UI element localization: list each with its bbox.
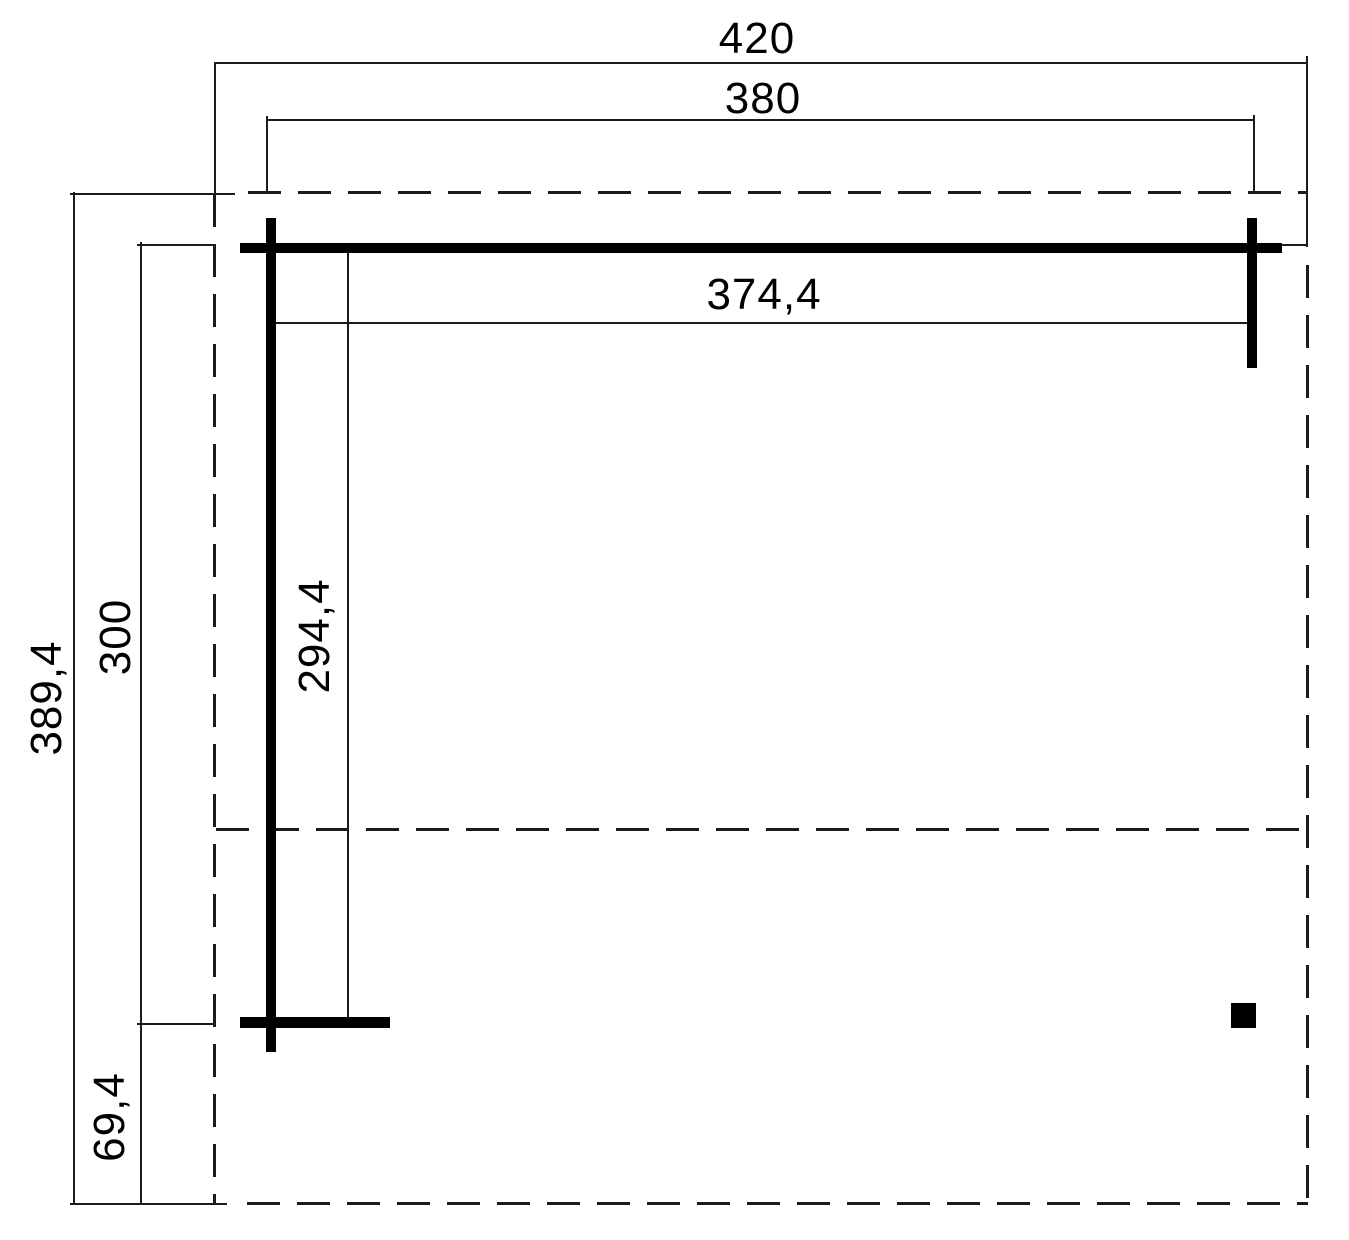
extension-line-420-left bbox=[214, 62, 216, 194]
dimension-line-294 bbox=[347, 253, 349, 1018]
dim-label-roof-depth: 389,4 bbox=[25, 640, 69, 755]
dimension-line-374 bbox=[275, 322, 1248, 324]
roof-outline-bottom bbox=[247, 1202, 1308, 1205]
dimension-line-300-694 bbox=[140, 242, 142, 1205]
extension-line-380-right bbox=[1253, 115, 1255, 194]
wall-left-side bbox=[266, 218, 276, 1052]
roof-outline-left bbox=[213, 194, 216, 1205]
roof-outline-top bbox=[248, 191, 1308, 194]
dim-label-clear-width: 374,4 bbox=[706, 273, 821, 317]
extension-line-300-694-divider bbox=[137, 1023, 216, 1025]
post-front-right bbox=[1247, 218, 1257, 368]
dim-label-roof-width: 420 bbox=[719, 17, 795, 61]
dim-label-post-span-depth: 300 bbox=[94, 599, 138, 675]
extension-line-389-bottom bbox=[70, 1203, 227, 1205]
dim-label-rear-overhang: 69,4 bbox=[88, 1072, 132, 1162]
dim-label-clear-depth: 294,4 bbox=[293, 578, 337, 693]
extension-line-389-top bbox=[70, 193, 235, 195]
floor-plan-canvas: 420 380 374,4 389,4 300 294,4 69,4 bbox=[0, 0, 1349, 1240]
extension-line-420-right bbox=[1306, 56, 1308, 247]
post-rear-right bbox=[1231, 1003, 1256, 1028]
wall-front-beam bbox=[240, 243, 1282, 253]
extension-line-300-top bbox=[137, 244, 216, 246]
wall-rear-left-stub bbox=[240, 1017, 390, 1028]
beam-edge-connector-right bbox=[1282, 244, 1308, 246]
extension-line-380-left bbox=[266, 116, 268, 194]
roof-outline-right bbox=[1306, 265, 1309, 1205]
roof-mid-line bbox=[216, 828, 1308, 831]
dim-label-post-span-width: 380 bbox=[725, 77, 801, 121]
dimension-line-389 bbox=[73, 192, 75, 1205]
